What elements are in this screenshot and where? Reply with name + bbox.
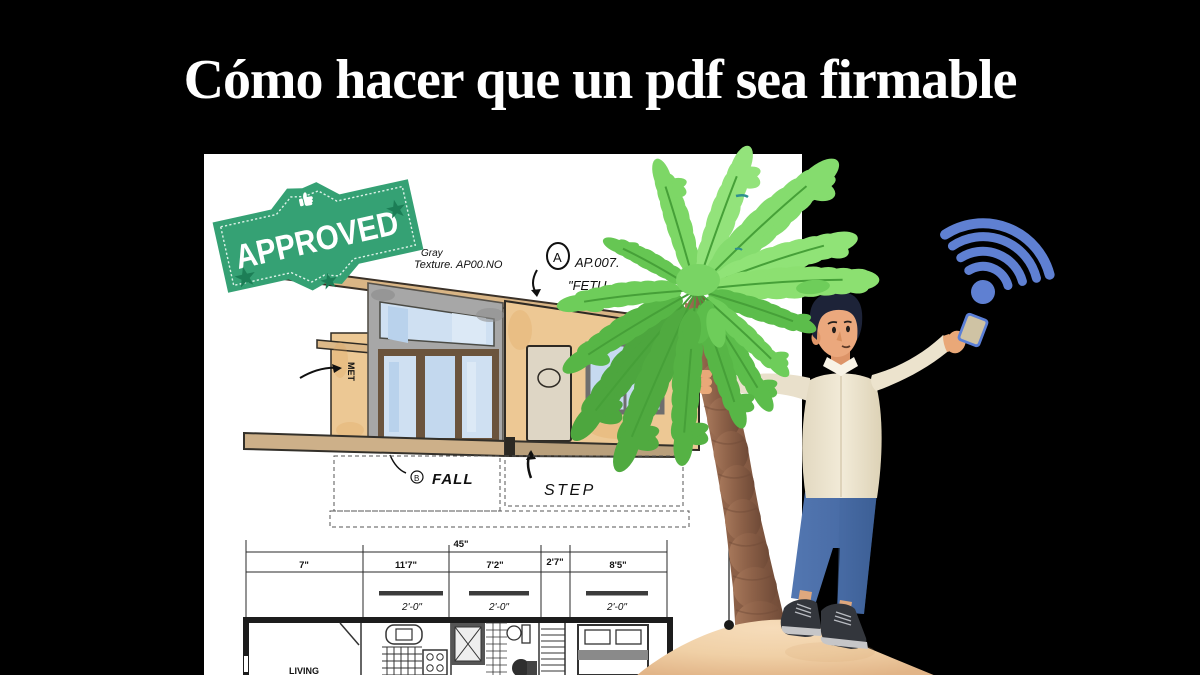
svg-text:2'-0": 2'-0" [401,602,422,613]
svg-text:AP.007.: AP.007. [574,255,620,270]
svg-text:45": 45" [453,539,468,550]
svg-text:FALL: FALL [432,471,474,488]
svg-text:2'-0": 2'-0" [488,602,509,613]
svg-text:STEP: STEP [544,482,596,499]
svg-text:A: A [553,250,562,265]
svg-text:11'7": 11'7" [395,560,417,571]
svg-text:7'2": 7'2" [486,560,503,571]
svg-text:7": 7" [299,560,309,571]
svg-text:B: B [414,474,419,483]
svg-text:2'7": 2'7" [546,557,563,568]
svg-text:Gray: Gray [421,248,444,259]
svg-text:8'5": 8'5" [609,560,626,571]
svg-text:2'-0": 2'-0" [606,602,627,613]
svg-text:Texture. AP00.NO: Texture. AP00.NO [414,259,503,271]
svg-text:LIVING: LIVING [289,666,319,675]
